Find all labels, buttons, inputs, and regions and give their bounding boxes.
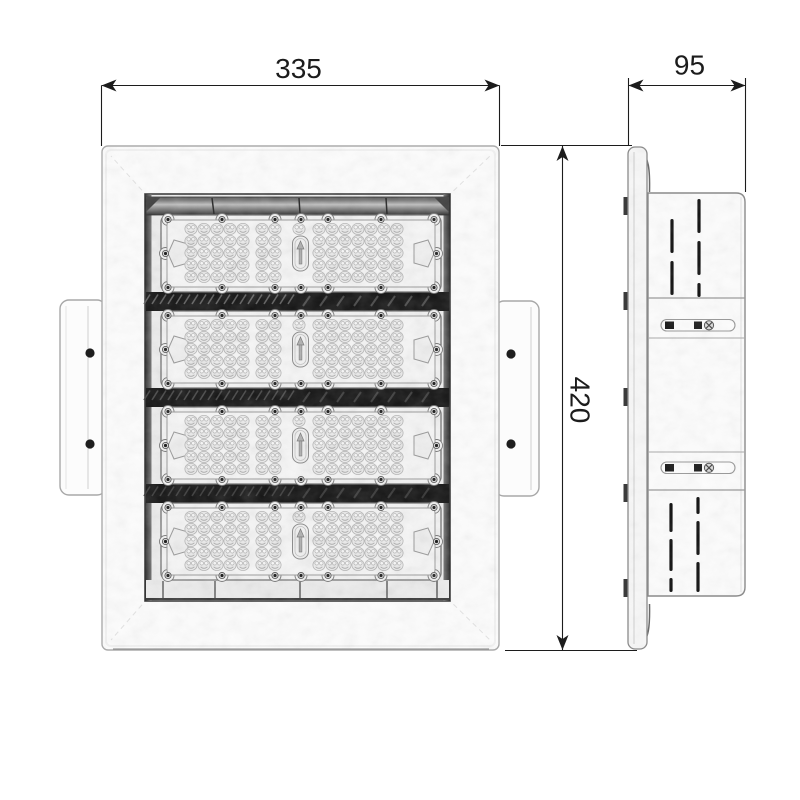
svg-text:335: 335 xyxy=(275,53,322,84)
svg-text:420: 420 xyxy=(565,377,596,424)
svg-text:95: 95 xyxy=(674,50,705,81)
